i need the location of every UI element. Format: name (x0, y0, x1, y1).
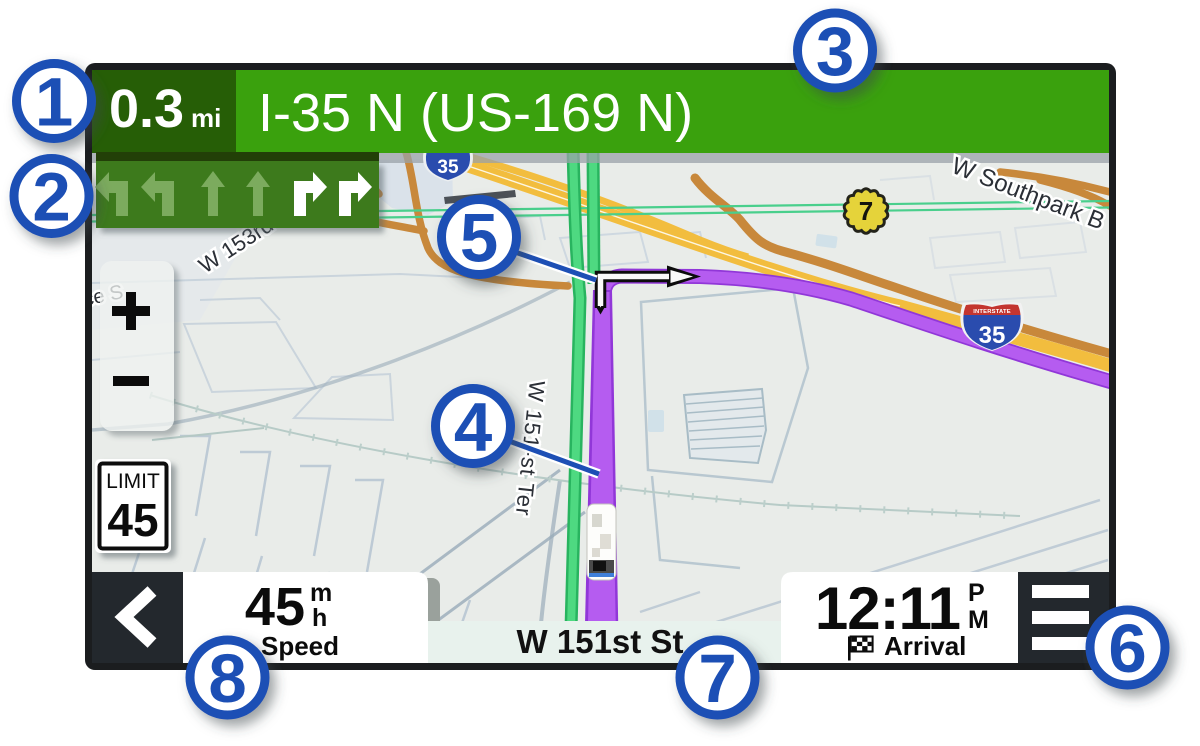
svg-text:h: h (312, 604, 327, 632)
svg-text:mi: mi (191, 103, 221, 133)
svg-text:Arrival: Arrival (884, 631, 966, 661)
svg-text:3: 3 (816, 13, 854, 90)
svg-text:M: M (968, 606, 989, 634)
svg-text:45: 45 (107, 494, 158, 546)
svg-text:8: 8 (208, 640, 246, 717)
svg-text:6: 6 (1108, 610, 1146, 687)
svg-text:7: 7 (698, 640, 736, 717)
svg-text:P: P (968, 579, 985, 607)
svg-text:I-35 N (US-169 N): I-35 N (US-169 N) (258, 83, 693, 143)
svg-text:0.3: 0.3 (109, 79, 184, 139)
svg-text:INTERSTATE: INTERSTATE (973, 309, 1011, 315)
svg-text:LIMIT: LIMIT (106, 470, 160, 493)
svg-text:m: m (310, 579, 332, 607)
svg-text:Speed: Speed (261, 631, 339, 661)
svg-text:45: 45 (245, 577, 305, 637)
svg-text:35: 35 (437, 157, 459, 178)
svg-text:1: 1 (35, 64, 73, 141)
svg-text:5: 5 (460, 200, 498, 277)
svg-text:2: 2 (32, 159, 70, 236)
svg-text:35: 35 (979, 322, 1006, 349)
svg-text:7: 7 (859, 196, 873, 226)
svg-text:W 151st St: W 151st St (517, 623, 684, 660)
svg-text:4: 4 (454, 389, 492, 466)
